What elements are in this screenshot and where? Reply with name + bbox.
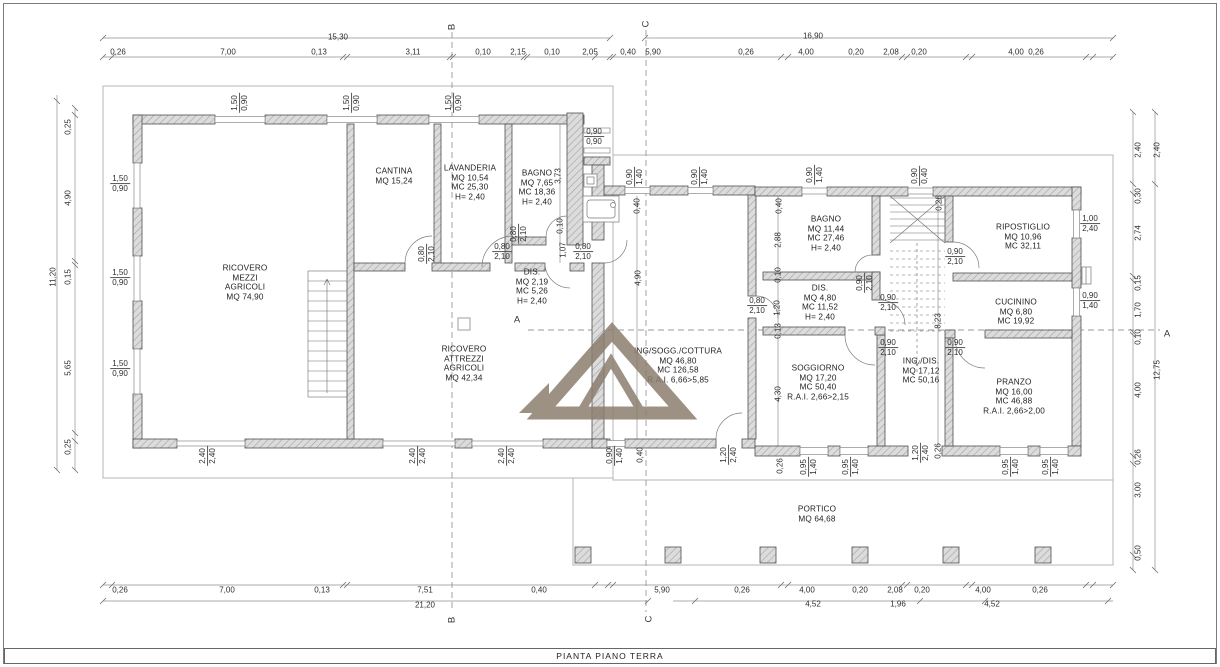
dim-window-text: 1,50 [342,93,351,113]
dim-bottom: 0,26 [110,585,130,594]
room-cucinino: CUCININOMQ 6,80MC 19,92 [995,297,1037,326]
dim-window-text: 1,50 [110,359,130,368]
dim-door: 0,902,10 [878,293,898,313]
dim-door-text: 0,90 [945,247,965,256]
dim-top-text: 2,08 [881,47,901,56]
dim-bottom-text: 4,00 [797,585,817,594]
dim-door-text: 0,90 [878,338,898,347]
section-marker-b-bottom: B [446,617,457,623]
dim-wall: 1,20 [772,298,781,318]
room-dis-1-text: MC 5,26 [516,287,548,297]
dim-window-text: 0,90 [910,166,919,186]
dim-door-text: 2,40 [418,446,428,466]
dim-window: 1,500,90 [342,93,362,113]
dim-window-text: 0,90 [625,167,634,187]
dim-wall-text: 0,26 [934,193,943,213]
room-cantina-text: MQ 15,24 [375,176,412,186]
dim-right: 4,00 [1133,380,1142,400]
dim-window: 1,500,90 [230,93,250,113]
dim-wall-text: 0,40 [774,196,783,216]
dim-window-text: 1,50 [110,268,130,277]
dim-bottom: 4,52 [982,599,1002,608]
dim-window-text: 0,90 [605,446,614,466]
room-ing-sogg-cottura-text: ING/SOGG./COTTURA [634,347,722,357]
room-portico-text: PORTICO [798,504,836,514]
dim-right-overall-text: 2,40 [1152,140,1161,160]
dim-bottom: 4,00 [797,585,817,594]
dim-top: 7,00 [218,47,238,56]
room-cucinino-text: MQ 6,80 [995,307,1037,317]
dim-left: 0,25 [63,437,72,457]
dim-right-overall: 2,40 [1152,140,1161,160]
dim-window-text: 0,40 [920,166,930,186]
dim-wall-text: 2,88 [773,230,782,250]
dim-left: 0,25 [63,117,72,137]
dim-wall-text: 0,10 [773,265,782,285]
section-marker-a-left-text: A [514,314,520,325]
room-soggiorno: SOGGIORNOMQ 17,20MC 50,40R.A.I. 2,66>2,1… [787,364,849,403]
room-lavanderia: LAVANDERIAMQ 10,54MC 25,30H= 2,40 [444,164,496,203]
room-ricovero-mezzi-text: RICOVERO [223,264,268,274]
dim-right: 0,10 [1133,327,1142,347]
dim-wall: 0,13 [773,321,782,341]
dim-top-text: 4,00 [796,47,816,56]
dim-bottom-overall-text: 21,20 [413,600,437,609]
dim-top: 0,26 [108,47,128,56]
dim-window-text: 0,95 [1041,457,1050,477]
dim-right-text: 0,26 [1133,447,1142,467]
dim-wall-text: 0,40 [632,196,641,216]
dim-wall: 4,30 [773,384,782,404]
room-ricovero-attrezzi-text: AGRICOLI [442,364,487,374]
room-bagno-2: BAGNOMQ 11,44MC 27,46H= 2,40 [808,215,845,254]
dim-door-text: 2,10 [945,257,965,267]
dim-bottom: 0,20 [850,585,870,594]
room-pranzo-text: PRANZO [983,378,1045,388]
dim-right: 0,26 [1133,447,1142,467]
room-ing-sogg-cottura-text: MC 126,58 [634,366,722,376]
dim-right: 0,50 [1133,543,1142,563]
dim-bottom-text: 7,00 [217,585,237,594]
section-marker-a-right-text: A [1164,328,1170,339]
room-soggiorno-text: SOGGIORNO [787,364,849,374]
dim-top: 0,20 [909,47,929,56]
dim-bottom-text: 0,26 [732,585,752,594]
dim-bottom: 7,51 [415,585,435,594]
dim-top-overall-right-text: 16,90 [801,31,825,40]
dim-bottom: 0,13 [312,585,332,594]
dim-right: 0,15 [1133,273,1142,293]
room-lavanderia-text: MQ 10,54 [444,173,496,183]
dim-window: 0,901,40 [625,167,645,187]
section-marker-a-right: A [1164,328,1170,339]
dim-right-text: 0,50 [1133,543,1142,563]
dim-window: 0,951,40 [841,457,861,477]
dim-left: 5,65 [63,358,72,378]
room-ing-dis-text: ING./DIS. [902,356,939,366]
dim-door: 0,802,10 [509,224,529,244]
dim-top-overall-right: 16,90 [801,31,825,40]
room-ing-dis-text: MC 50,16 [902,376,939,386]
room-bagno-1-text: MC 18,36 [519,188,556,198]
dim-wall-text: 0,26 [775,456,784,476]
dim-bottom-overall: 21,20 [413,600,437,609]
dim-bottom: 0,20 [912,585,932,594]
dim-window: 0,901,40 [605,446,625,466]
dim-door-text: 0,80 [492,242,512,251]
room-ripostiglio-text: MQ 10,96 [996,232,1050,242]
dim-door-text: 2,10 [519,224,529,244]
section-marker-b-bottom-text: B [446,617,457,623]
dim-right-text: 0,15 [1133,273,1142,293]
dim-bottom-text: 0,20 [850,585,870,594]
room-cucinino-text: CUCININO [995,297,1037,307]
room-dis-2: DIS.MQ 4,80MC 11,52H= 2,40 [802,284,838,323]
dim-bottom: 0,40 [529,585,549,594]
dim-top: 4,00 [796,47,816,56]
dim-window-text: 0,95 [841,457,850,477]
dim-left-overall: 11,20 [48,265,57,288]
room-lavanderia-text: MC 25,30 [444,183,496,193]
dim-bottom-text: 2,08 [885,585,905,594]
room-pranzo-text: MC 46,88 [983,397,1045,407]
dim-door-text: 2,10 [878,348,898,358]
dim-window-text: 0,90 [454,93,464,113]
dim-door-text: 2,40 [497,446,506,466]
dim-door-text: 0,80 [417,244,426,264]
room-soggiorno-text: R.A.I. 2,66>2,15 [787,393,849,403]
dim-window: 0,901,40 [690,167,710,187]
dim-window-text: 0,90 [110,369,130,379]
dim-window-text: 0,90 [352,93,362,113]
room-dis-1-text: H= 2,40 [516,297,548,307]
dim-wall-text: 1,07 [558,240,567,260]
room-ing-sogg-cottura-text: R.A.I. 6,66>5,85 [634,376,722,386]
dim-window-text: 0,95 [1001,457,1010,477]
dim-top-text: 0,26 [108,47,128,56]
dim-window: 0,900,90 [584,127,604,147]
dim-wall: 0,26 [934,193,943,213]
dim-window: 0,951,40 [799,457,819,477]
dim-window-text: 1,40 [615,446,625,466]
dim-window: 1,500,90 [110,268,130,288]
dim-left-text: 4,90 [63,188,72,208]
dim-top-text: 2,15 [508,47,528,56]
dim-door-text: 2,40 [507,446,517,466]
dim-door: 2,402,40 [198,446,218,466]
dim-top-text: 0,40 [618,47,638,56]
dim-wall: 4,90 [633,268,642,288]
dim-window: 0,901,40 [805,165,825,185]
room-bagno-1-text: H= 2,40 [519,198,556,208]
dim-right: 1,70 [1133,300,1142,320]
dim-right: 2,40 [1133,140,1142,160]
dim-door: 0,802,10 [417,244,437,264]
dim-window-text: 0,90 [1080,291,1100,300]
dim-bottom-text: 1,96 [888,599,908,608]
section-marker-a-left: A [514,314,520,325]
dim-bottom: 5,90 [652,585,672,594]
dim-left-text: 0,15 [63,267,72,287]
dim-door: 0,802,10 [492,242,512,262]
dim-window-text: 1,40 [851,457,861,477]
dim-window-text: 0,90 [110,278,130,288]
dim-window-text: 1,40 [700,167,710,187]
dim-right-text: 1,70 [1133,300,1142,320]
dim-window-text: 1,40 [815,165,825,185]
dim-wall-text: 0,13 [773,321,782,341]
dim-wall: 0,40 [632,196,641,216]
dim-wall-text: 4,90 [633,268,642,288]
dim-right: 2,74 [1133,223,1142,243]
dim-door-text: 2,40 [198,446,207,466]
dim-door: 2,402,40 [408,446,428,466]
labels-layer: BBCCAA15,3016,900,267,000,133,110,102,15… [0,0,1220,667]
dim-wall: 0,10 [773,265,782,285]
dim-top-overall-left: 15,30 [326,32,350,41]
dim-door-text: 0,90 [878,293,898,302]
room-ricovero-attrezzi-text: ATTREZZI [442,354,487,364]
dim-top-text: 0,10 [542,47,562,56]
room-dis-1: DIS.MQ 2,19MC 5,26H= 2,40 [516,268,548,307]
dim-bottom: 0,26 [732,585,752,594]
room-ricovero-mezzi: RICOVEROMEZZIAGRICOLIMQ 74,90 [223,264,268,303]
dim-door: 0,802,10 [747,296,767,316]
dim-door: 0,802,10 [573,242,593,262]
dim-wall: 0,10 [555,216,564,236]
dim-window-text: 0,90 [584,137,604,147]
dim-door-text: 2,10 [492,252,512,262]
room-lavanderia-text: LAVANDERIA [444,164,496,174]
room-bagno-2-text: BAGNO [808,215,845,225]
dim-right-text: 2,40 [1133,140,1142,160]
dim-door: 2,402,40 [497,446,517,466]
section-marker-b-top-text: B [446,24,457,30]
dim-bottom: 0,26 [1030,585,1050,594]
dim-wall: 0,40 [774,196,783,216]
section-marker-c-bottom-text: C [643,616,654,623]
room-ing-dis-text: MQ 17,12 [902,366,939,376]
dim-right-text: 3,00 [1133,480,1142,500]
dim-door-text: 0,80 [747,296,767,305]
room-bagno-1-text: MQ 7,65 [519,178,556,188]
dim-top: 0,20 [846,47,866,56]
dim-top: 5,90 [643,47,663,56]
dim-door: 0,902,10 [945,338,965,358]
section-marker-c-bottom: C [643,616,654,623]
dim-left: 4,90 [63,188,72,208]
dim-top-text: 0,10 [473,47,493,56]
dim-left-text: 5,65 [63,358,72,378]
dim-window-text: 0,90 [584,127,604,136]
dim-window-text: 0,95 [799,457,808,477]
dim-right-text: 0,30 [1133,186,1142,206]
room-portico: PORTICOMQ 64,68 [798,504,836,523]
dim-window-text: 1,40 [1011,457,1021,477]
dim-window: 0,900,40 [910,166,930,186]
dim-window: 1,002,40 [1080,214,1100,234]
room-ricovero-mezzi-text: MQ 74,90 [223,293,268,303]
dim-top: 0,13 [309,47,329,56]
dim-wall-text: 0,40 [635,445,644,465]
dim-door-text: 2,40 [208,446,218,466]
dim-top: 0,40 [618,47,638,56]
section-marker-c-top-text: C [640,21,651,28]
dim-bottom: 4,52 [803,599,823,608]
room-dis-1-text: DIS. [516,268,548,278]
dim-window-text: 1,40 [1080,301,1100,311]
dim-bottom-text: 5,90 [652,585,672,594]
dim-top-text: 4,00 [1006,47,1026,56]
dim-left-text: 0,25 [63,437,72,457]
floor-plan-sheet: BBCCAA15,3016,900,267,000,133,110,102,15… [0,0,1220,667]
dim-bottom-text: 4,00 [973,585,993,594]
dim-window-text: 1,00 [1080,214,1100,223]
dim-window: 0,901,40 [1080,291,1100,311]
dim-wall: 0,26 [933,441,942,461]
room-ing-sogg-cottura-text: MQ 46,80 [634,356,722,366]
room-ricovero-mezzi-text: MEZZI [223,273,268,283]
dim-bottom-text: 4,52 [982,599,1002,608]
dim-window-text: 1,40 [809,457,819,477]
dim-window: 0,951,40 [1041,457,1061,477]
dim-door: 0,902,10 [878,338,898,358]
dim-bottom: 7,00 [217,585,237,594]
dim-wall: 1,07 [558,240,567,260]
dim-door-text: 0,80 [573,242,593,251]
dim-window: 0,951,40 [1001,457,1021,477]
dim-left-overall-text: 11,20 [48,265,57,288]
dim-window: 1,500,90 [444,93,464,113]
dim-wall-text: 4,30 [773,384,782,404]
dim-wall-text: 8,23 [933,311,942,331]
sheet-title: PIANTA PIANO TERRA [556,651,663,661]
dim-top-text: 0,13 [309,47,329,56]
dim-wall-text: 0,26 [933,441,942,461]
dim-top-text: 0,26 [736,47,756,56]
dim-door-text: 2,10 [427,244,437,264]
room-ripostiglio: RIPOSTIGLIOMQ 10,96MC 32,11 [996,222,1050,251]
room-ripostiglio-text: RIPOSTIGLIO [996,222,1050,232]
room-dis-1-text: MQ 2,19 [516,277,548,287]
dim-top: 0,26 [1026,47,1046,56]
dim-window: 1,500,90 [110,174,130,194]
room-pranzo-text: R.A.I. 2,66>2,00 [983,407,1045,417]
dim-right-overall-text: 12,75 [1152,358,1161,382]
dim-right-overall: 12,75 [1152,358,1161,382]
dim-window-text: 1,40 [635,167,645,187]
section-marker-c-top: C [640,21,651,28]
room-ricovero-attrezzi: RICOVEROATTREZZIAGRICOLIMQ 42,34 [442,345,487,384]
dim-window: 1,500,90 [110,359,130,379]
dim-door-text: 2,10 [573,252,593,262]
dim-door-text: 0,80 [509,224,518,244]
dim-top: 0,10 [473,47,493,56]
dim-wall: 0,40 [635,445,644,465]
dim-top: 0,26 [736,47,756,56]
room-portico-text: MQ 64,68 [798,514,836,524]
dim-wall: 2,88 [773,230,782,250]
dim-door: 1,202,40 [911,443,931,463]
dim-wall: 0,26 [775,456,784,476]
dim-window-text: 1,50 [110,174,130,183]
dim-door-text: 2,40 [408,446,417,466]
dim-window-text: 0,90 [690,167,699,187]
dim-window-text: 1,50 [230,93,239,113]
room-soggiorno-text: MQ 17,20 [787,373,849,383]
dim-bottom-text: 0,26 [110,585,130,594]
dim-door-text: 2,10 [865,273,875,293]
dim-bottom-text: 0,13 [312,585,332,594]
dim-right: 0,30 [1133,186,1142,206]
dim-door-text: 2,10 [747,306,767,316]
room-bagno-2-text: MQ 11,44 [808,224,845,234]
room-ing-dis: ING./DIS.MQ 17,12MC 50,16 [902,356,939,385]
room-soggiorno-text: MC 50,40 [787,383,849,393]
room-cantina: CANTINAMQ 15,24 [375,166,412,185]
dim-right-text: 2,74 [1133,223,1142,243]
dim-door-text: 1,20 [911,443,920,463]
dim-door-text: 2,40 [921,443,931,463]
dim-bottom-text: 0,20 [912,585,932,594]
sheet-title-bar: PIANTA PIANO TERRA [4,648,1216,664]
dim-top: 4,00 [1006,47,1026,56]
dim-door-text: 2,40 [729,445,739,465]
room-ricovero-mezzi-text: AGRICOLI [223,283,268,293]
dim-door-text: 2,10 [878,303,898,313]
dim-bottom: 1,96 [888,599,908,608]
room-lavanderia-text: H= 2,40 [444,193,496,203]
room-pranzo: PRANZOMQ 16,00MC 46,88R.A.I. 2,66>2,00 [983,378,1045,417]
dim-window-text: 0,90 [805,165,814,185]
room-ing-sogg-cottura: ING/SOGG./COTTURAMQ 46,80MC 126,58R.A.I.… [634,347,722,386]
room-cantina-text: CANTINA [375,166,412,176]
dim-bottom: 4,00 [973,585,993,594]
dim-door-text: 0,90 [945,338,965,347]
room-ripostiglio-text: MC 32,11 [996,242,1050,252]
dim-window-text: 0,90 [240,93,250,113]
room-bagno-1: BAGNOMQ 7,65MC 18,36H= 2,40 [519,169,556,208]
dim-top-text: 0,20 [846,47,866,56]
dim-top-text: 3,11 [404,47,423,56]
room-bagno-1-text: BAGNO [519,169,556,179]
room-bagno-2-text: H= 2,40 [808,244,845,254]
dim-top: 2,15 [508,47,528,56]
dim-window-text: 0,90 [110,184,130,194]
dim-door: 1,202,40 [719,445,739,465]
dim-wall-text: 0,10 [555,216,564,236]
room-dis-2-text: MC 11,52 [802,303,838,313]
dim-wall: 8,23 [933,311,942,331]
dim-door-text: 1,20 [719,445,728,465]
dim-door: 0,902,10 [855,273,875,293]
dim-bottom-text: 7,51 [415,585,435,594]
dim-top-text: 0,26 [1026,47,1046,56]
dim-top: 2,05 [580,47,600,56]
dim-top-text: 7,00 [218,47,238,56]
dim-top: 2,08 [881,47,901,56]
dim-top-text: 5,90 [643,47,663,56]
dim-top-overall-left-text: 15,30 [326,32,350,41]
dim-bottom-text: 0,26 [1030,585,1050,594]
room-cucinino-text: MC 19,92 [995,317,1037,327]
section-marker-b-top: B [446,24,457,30]
dim-right-text: 4,00 [1133,380,1142,400]
dim-door-text: 2,10 [945,348,965,358]
room-pranzo-text: MQ 16,00 [983,387,1045,397]
dim-right: 3,00 [1133,480,1142,500]
dim-window-text: 1,50 [444,93,453,113]
